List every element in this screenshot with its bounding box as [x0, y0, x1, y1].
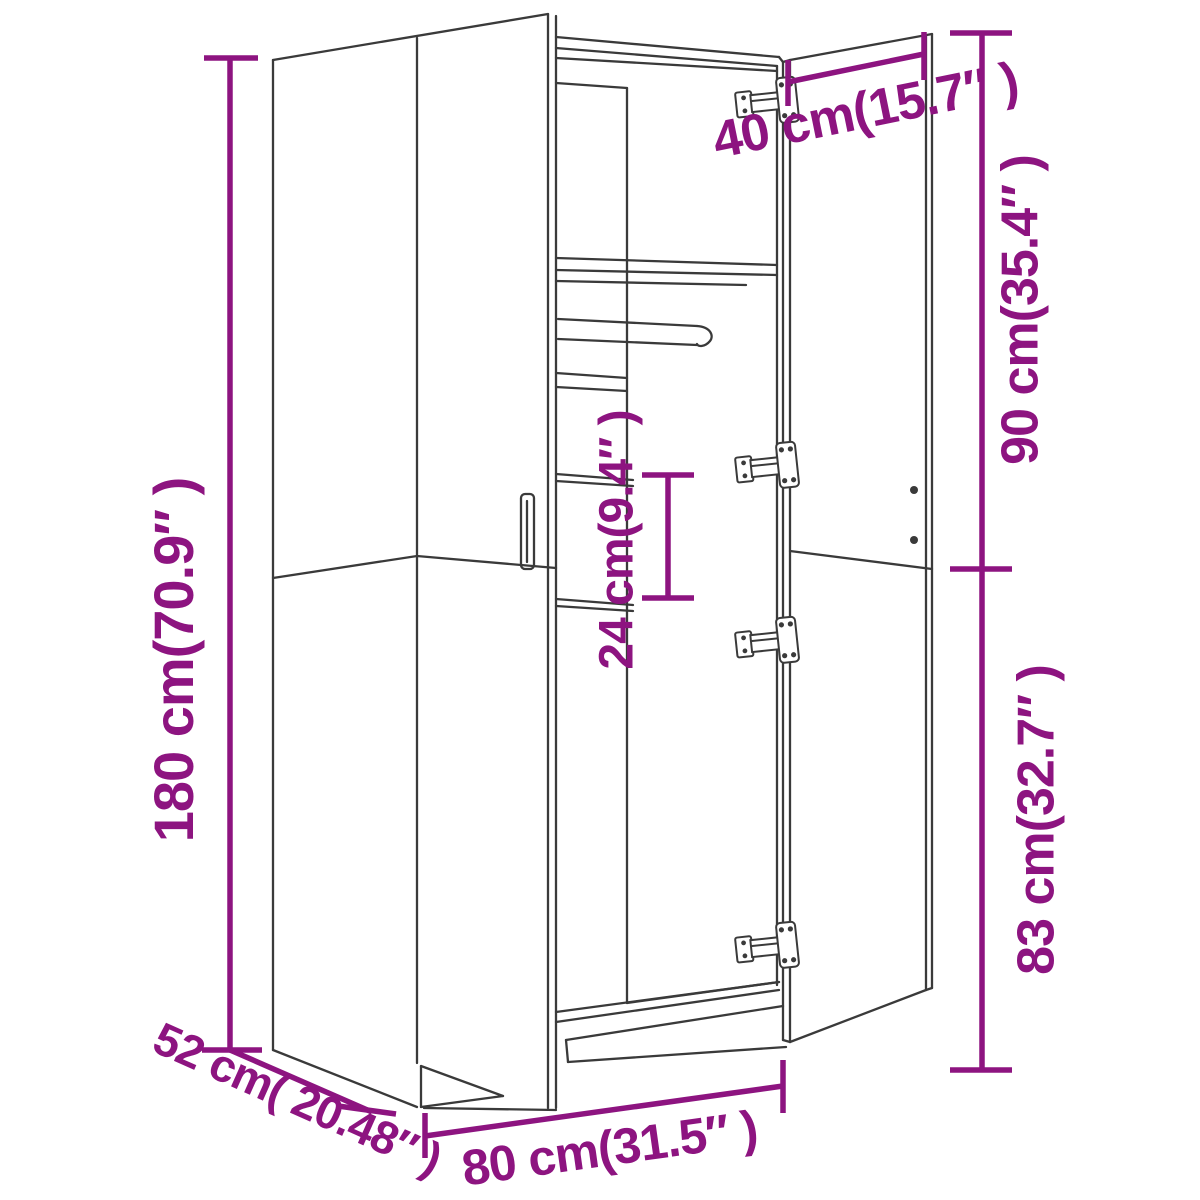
hinge-icon: [734, 441, 799, 492]
bottom-section-label: 83 cm(32.7″ ): [1008, 665, 1066, 975]
depth-label: 52 cm( 20.48″ ): [146, 1012, 449, 1185]
diagram-canvas: 180 cm(70.9″ ) 52 cm( 20.48″ ) 80 cm(31.…: [0, 0, 1200, 1200]
height-label: 180 cm(70.9″ ): [142, 478, 205, 843]
dimension-height: [202, 58, 262, 1050]
dimension-shelf-gap: [642, 475, 694, 598]
top-shelf: [556, 258, 777, 285]
width-label: 80 cm(31.5″ ): [458, 1100, 760, 1197]
handle-hole-bottom: [910, 536, 918, 544]
door-handle: [521, 494, 534, 569]
handle-hole-top: [910, 486, 918, 494]
clothes-rail: [558, 319, 712, 346]
cabinet-base: [556, 982, 786, 1062]
left-door: [273, 14, 556, 1110]
top-section-label: 90 cm(35.4″ ): [992, 155, 1050, 465]
shelf-gap-label: 24 cm(9.4″ ): [591, 410, 644, 669]
hinge-icon: [734, 616, 799, 667]
wardrobe-dimension-diagram: 180 cm(70.9″ ) 52 cm( 20.48″ ) 80 cm(31.…: [0, 0, 1200, 1200]
right-door: [783, 34, 932, 1042]
dimension-bottom-section: [950, 569, 1012, 1070]
hinge-icon: [734, 921, 799, 972]
